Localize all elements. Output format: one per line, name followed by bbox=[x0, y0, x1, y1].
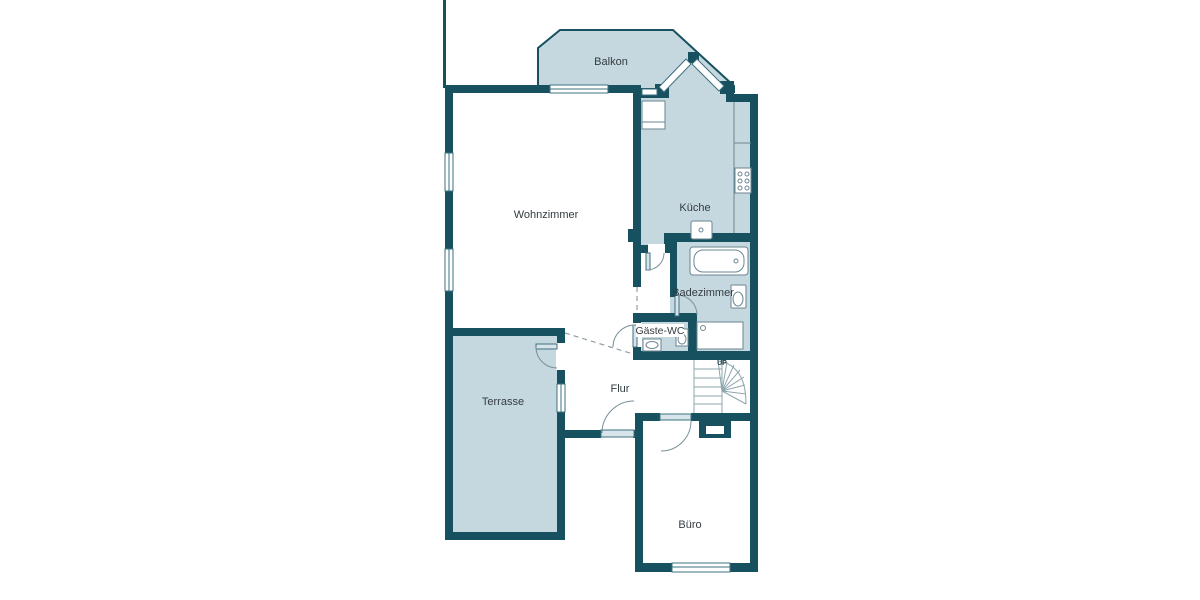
staircase bbox=[694, 360, 746, 413]
wall-terrasse-bottom bbox=[445, 532, 565, 540]
label-terrasse: Terrasse bbox=[482, 396, 524, 408]
room-fills bbox=[449, 30, 752, 536]
wall-gaeste-wc-north bbox=[633, 313, 697, 322]
label-stairs-up: UP bbox=[717, 360, 727, 367]
stair-treads bbox=[694, 360, 722, 413]
door-arc-flur bbox=[602, 401, 634, 433]
label-balkon: Balkon bbox=[594, 56, 628, 68]
door-leaf-flur bbox=[601, 430, 634, 437]
door-arc-buero bbox=[661, 421, 691, 451]
wall-middle bbox=[633, 351, 758, 360]
kueche-sink-icon bbox=[691, 221, 712, 239]
window-kueche-nw bbox=[642, 89, 657, 95]
wall-stub bbox=[628, 229, 635, 242]
label-badezimmer: Badezimmer bbox=[672, 287, 734, 299]
door-leaf-buero bbox=[660, 414, 691, 420]
wall-east-outer bbox=[750, 94, 758, 572]
label-gaeste-wc: Gäste-WC bbox=[635, 325, 684, 337]
wall-wohnzimmer-bottom bbox=[445, 328, 565, 336]
room-terrasse bbox=[449, 331, 561, 536]
door-leaf-terrasse bbox=[536, 344, 557, 349]
wall-boundary-line bbox=[443, 0, 446, 88]
wall-buero-west bbox=[635, 413, 643, 572]
label-buero: Büro bbox=[678, 519, 701, 531]
floorplan-canvas: Balkon Wohnzimmer Küche Badezimmer Gäste… bbox=[0, 0, 1200, 600]
door-arc-gaeste-wc bbox=[613, 325, 635, 347]
door-opening-kueche bbox=[648, 244, 665, 254]
door-leaf-kueche bbox=[646, 253, 650, 270]
open-passage-diagonal bbox=[565, 333, 633, 354]
wall-wohnzimmer-east-upper bbox=[633, 85, 641, 287]
label-flur: Flur bbox=[611, 383, 630, 395]
chimney-core bbox=[706, 426, 724, 434]
wall-buero-north bbox=[635, 413, 758, 421]
label-kueche: Küche bbox=[679, 202, 710, 214]
wall-wohnzimmer-top bbox=[445, 85, 641, 93]
label-wohnzimmer: Wohnzimmer bbox=[514, 209, 579, 221]
fridge-icon bbox=[642, 101, 665, 129]
